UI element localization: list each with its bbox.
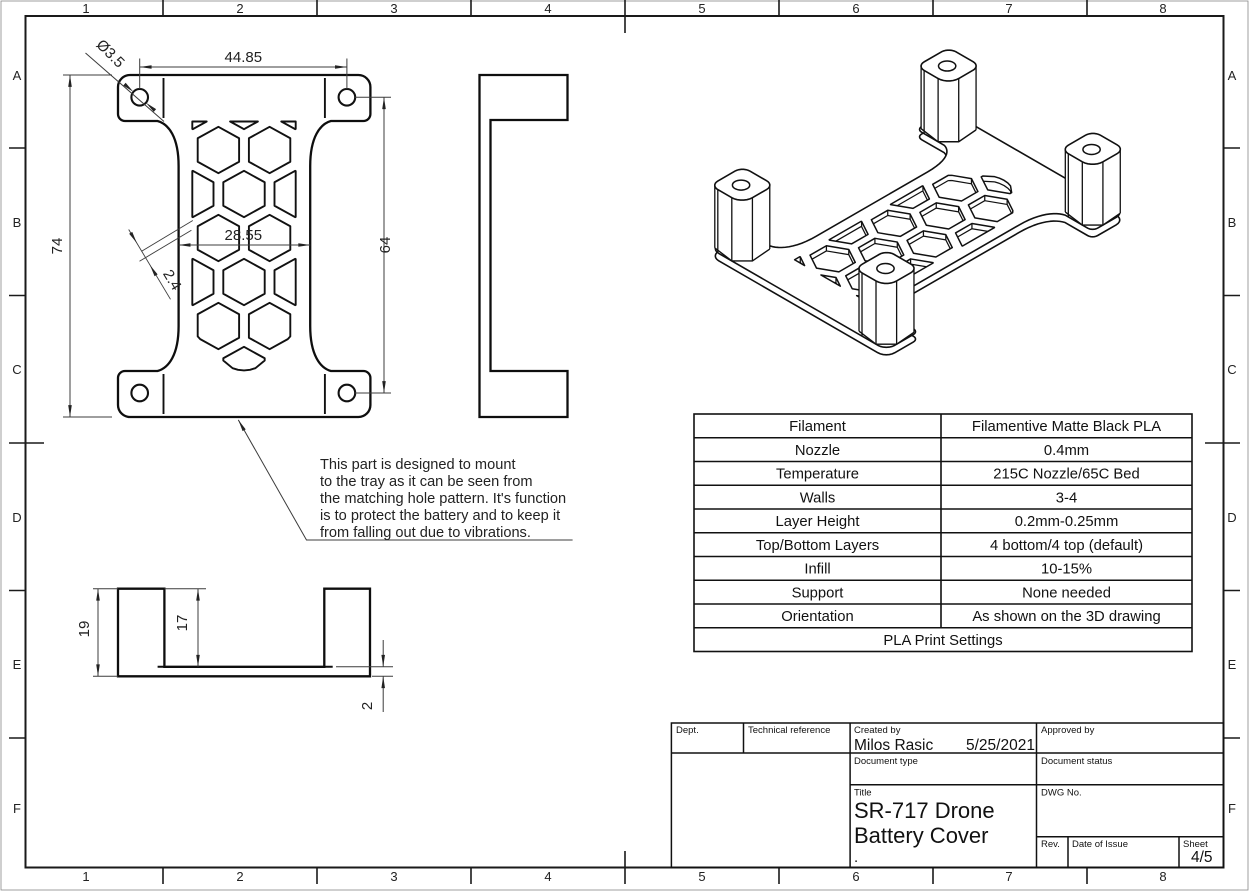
svg-text:1: 1: [82, 869, 89, 884]
svg-text:B: B: [1228, 215, 1237, 230]
svg-text:is to protect the battery and: is to protect the battery and to keep it: [320, 508, 560, 524]
svg-text:4/5: 4/5: [1191, 849, 1213, 866]
svg-text:74: 74: [49, 238, 66, 255]
svg-text:4: 4: [544, 869, 551, 884]
svg-text:Battery Cover: Battery Cover: [854, 823, 989, 848]
svg-text:As shown on the 3D drawing: As shown on the 3D drawing: [972, 609, 1160, 625]
svg-text:Document type: Document type: [854, 756, 918, 767]
svg-text:Title: Title: [854, 788, 872, 799]
svg-text:Top/Bottom Layers: Top/Bottom Layers: [756, 538, 879, 554]
svg-text:Filament: Filament: [789, 419, 846, 435]
svg-text:PLA Print Settings: PLA Print Settings: [883, 633, 1002, 649]
svg-text:3: 3: [390, 1, 397, 16]
svg-text:Filamentive Matte Black PLA: Filamentive Matte Black PLA: [972, 419, 1161, 435]
svg-text:2: 2: [236, 869, 243, 884]
svg-text:E: E: [13, 657, 22, 672]
svg-text:4: 4: [544, 1, 551, 16]
svg-text:Milos Rasic: Milos Rasic: [854, 737, 933, 754]
svg-text:1: 1: [82, 1, 89, 16]
svg-text:B: B: [13, 215, 22, 230]
svg-text:7: 7: [1005, 869, 1012, 884]
svg-text:Support: Support: [792, 585, 844, 601]
svg-text:Walls: Walls: [800, 490, 836, 506]
svg-text:A: A: [1228, 68, 1237, 83]
svg-text:44.85: 44.85: [225, 49, 263, 66]
svg-text:10-15%: 10-15%: [1041, 562, 1092, 578]
svg-text:6: 6: [852, 869, 859, 884]
svg-text:D: D: [1227, 510, 1236, 525]
svg-text:F: F: [13, 801, 21, 816]
svg-text:.: .: [854, 849, 858, 866]
svg-text:2: 2: [236, 1, 243, 16]
svg-text:Created by: Created by: [854, 725, 901, 736]
svg-text:3-4: 3-4: [1056, 490, 1077, 506]
svg-text:E: E: [1228, 657, 1237, 672]
svg-text:C: C: [1227, 362, 1236, 377]
svg-text:28.55: 28.55: [225, 227, 263, 244]
svg-text:5/25/2021: 5/25/2021: [966, 737, 1035, 754]
svg-text:215C Nozzle/65C Bed: 215C Nozzle/65C Bed: [993, 467, 1139, 483]
svg-text:Infill: Infill: [804, 562, 830, 578]
svg-text:5: 5: [698, 869, 705, 884]
svg-text:7: 7: [1005, 1, 1012, 16]
svg-text:This part is designed to mount: This part is designed to mount: [320, 457, 516, 473]
svg-text:C: C: [12, 362, 21, 377]
svg-text:Temperature: Temperature: [776, 467, 859, 483]
svg-text:Technical reference: Technical reference: [748, 725, 830, 736]
svg-text:SR-717 Drone: SR-717 Drone: [854, 798, 995, 823]
svg-text:0.4mm: 0.4mm: [1044, 443, 1089, 459]
svg-text:19: 19: [76, 621, 93, 638]
svg-text:6: 6: [852, 1, 859, 16]
svg-text:F: F: [1228, 801, 1236, 816]
svg-text:64: 64: [377, 237, 394, 254]
svg-text:from falling out due to vibrat: from falling out due to vibrations.: [320, 525, 531, 541]
svg-text:8: 8: [1159, 1, 1166, 16]
svg-text:Rev.: Rev.: [1041, 839, 1060, 850]
svg-text:17: 17: [174, 615, 191, 632]
svg-text:Approved by: Approved by: [1041, 725, 1095, 736]
svg-text:to the tray as it can be seen: to the tray as it can be seen from: [320, 474, 533, 490]
svg-text:5: 5: [698, 1, 705, 16]
svg-text:Dept.: Dept.: [676, 725, 699, 736]
svg-text:Orientation: Orientation: [781, 609, 853, 625]
svg-text:Nozzle: Nozzle: [795, 443, 840, 459]
svg-text:D: D: [12, 510, 21, 525]
svg-text:4 bottom/4 top (default): 4 bottom/4 top (default): [990, 538, 1143, 554]
svg-text:8: 8: [1159, 869, 1166, 884]
svg-text:Date of Issue: Date of Issue: [1072, 839, 1128, 850]
svg-text:None needed: None needed: [1022, 585, 1111, 601]
svg-text:A: A: [13, 68, 22, 83]
svg-text:the matching hole pattern. It': the matching hole pattern. It's function: [320, 491, 566, 507]
svg-text:Layer Height: Layer Height: [776, 514, 860, 530]
svg-text:3: 3: [390, 869, 397, 884]
svg-text:DWG No.: DWG No.: [1041, 788, 1082, 799]
svg-text:0.2mm-0.25mm: 0.2mm-0.25mm: [1015, 514, 1119, 530]
svg-text:Document status: Document status: [1041, 756, 1113, 767]
svg-text:2: 2: [359, 702, 376, 710]
